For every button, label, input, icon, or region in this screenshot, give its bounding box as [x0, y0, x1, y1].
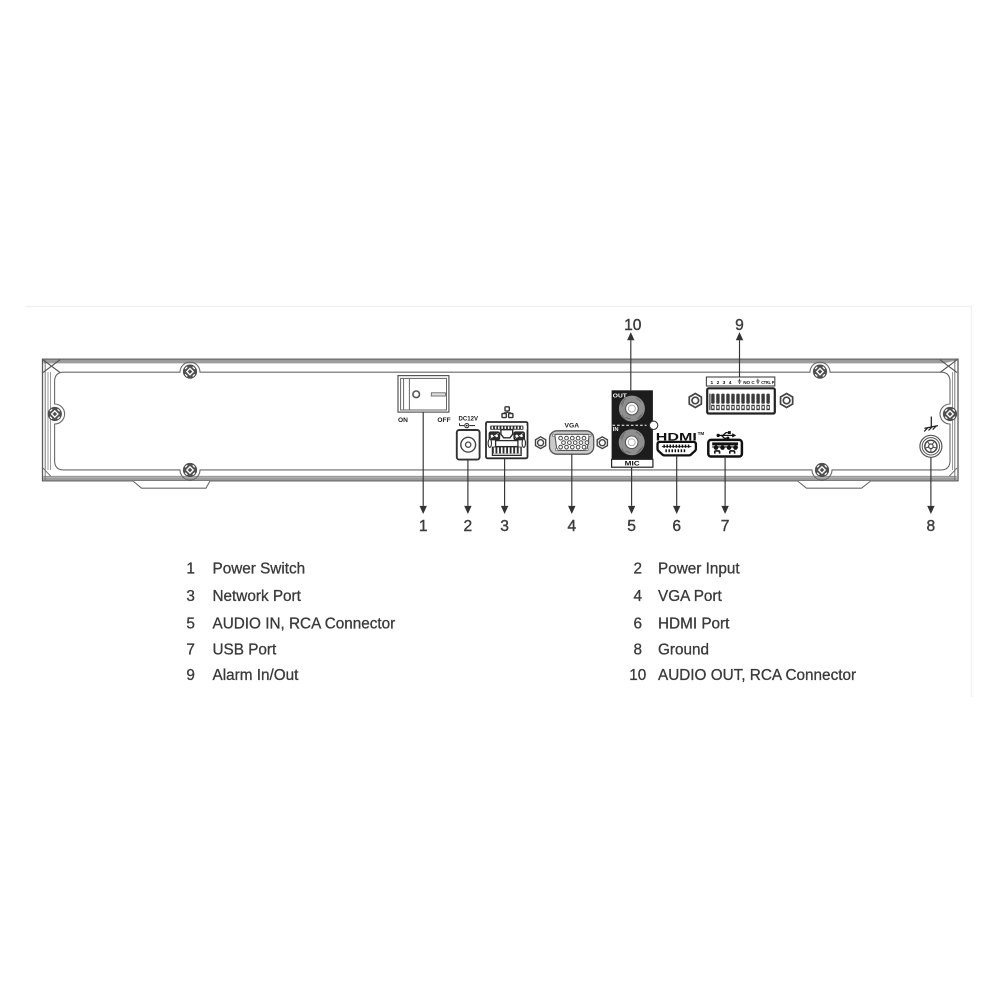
svg-text:4: 4	[634, 588, 643, 605]
svg-text:4: 4	[567, 518, 576, 535]
svg-text:ON: ON	[398, 417, 408, 424]
svg-text:AUDIO IN, RCA Connector: AUDIO IN, RCA Connector	[213, 615, 396, 632]
svg-text:10: 10	[624, 317, 642, 334]
svg-text:NO C: NO C	[743, 380, 755, 386]
svg-text:VGA Port: VGA Port	[658, 588, 723, 605]
svg-text:3: 3	[186, 588, 195, 605]
svg-text:3: 3	[500, 518, 509, 535]
svg-text:IN: IN	[613, 427, 619, 433]
svg-text:1: 1	[186, 560, 195, 577]
svg-text:TM: TM	[698, 431, 705, 436]
svg-text:5: 5	[186, 615, 195, 632]
svg-text:VGA: VGA	[565, 423, 580, 430]
svg-text:CTRL P: CTRL P	[761, 380, 775, 386]
svg-text:7: 7	[721, 518, 730, 535]
svg-text:Power Input: Power Input	[658, 560, 740, 577]
svg-text:MIC: MIC	[625, 461, 640, 468]
svg-text:8: 8	[634, 642, 643, 659]
svg-text:AUDIO OUT, RCA Connector: AUDIO OUT, RCA Connector	[658, 667, 856, 684]
svg-text:6: 6	[634, 615, 643, 632]
svg-text:Power Switch: Power Switch	[213, 560, 306, 577]
svg-text:2: 2	[634, 560, 643, 577]
svg-text:Ground: Ground	[658, 642, 709, 659]
svg-text:OFF: OFF	[437, 417, 450, 424]
svg-text:1234: 1234	[711, 380, 735, 386]
svg-text:8: 8	[927, 518, 936, 535]
svg-text:2: 2	[464, 518, 473, 535]
svg-text:7: 7	[186, 642, 195, 659]
svg-text:5: 5	[627, 518, 636, 535]
svg-text:Alarm In/Out: Alarm In/Out	[213, 667, 300, 684]
svg-text:1: 1	[419, 518, 428, 535]
svg-text:10: 10	[629, 667, 646, 684]
svg-text:DC12V: DC12V	[459, 416, 479, 423]
svg-text:HDMI Port: HDMI Port	[658, 615, 730, 632]
svg-text:Network Port: Network Port	[213, 588, 302, 605]
svg-text:9: 9	[735, 317, 744, 334]
svg-text:USB Port: USB Port	[213, 642, 278, 659]
svg-text:6: 6	[672, 518, 681, 535]
svg-text:9: 9	[186, 667, 195, 684]
